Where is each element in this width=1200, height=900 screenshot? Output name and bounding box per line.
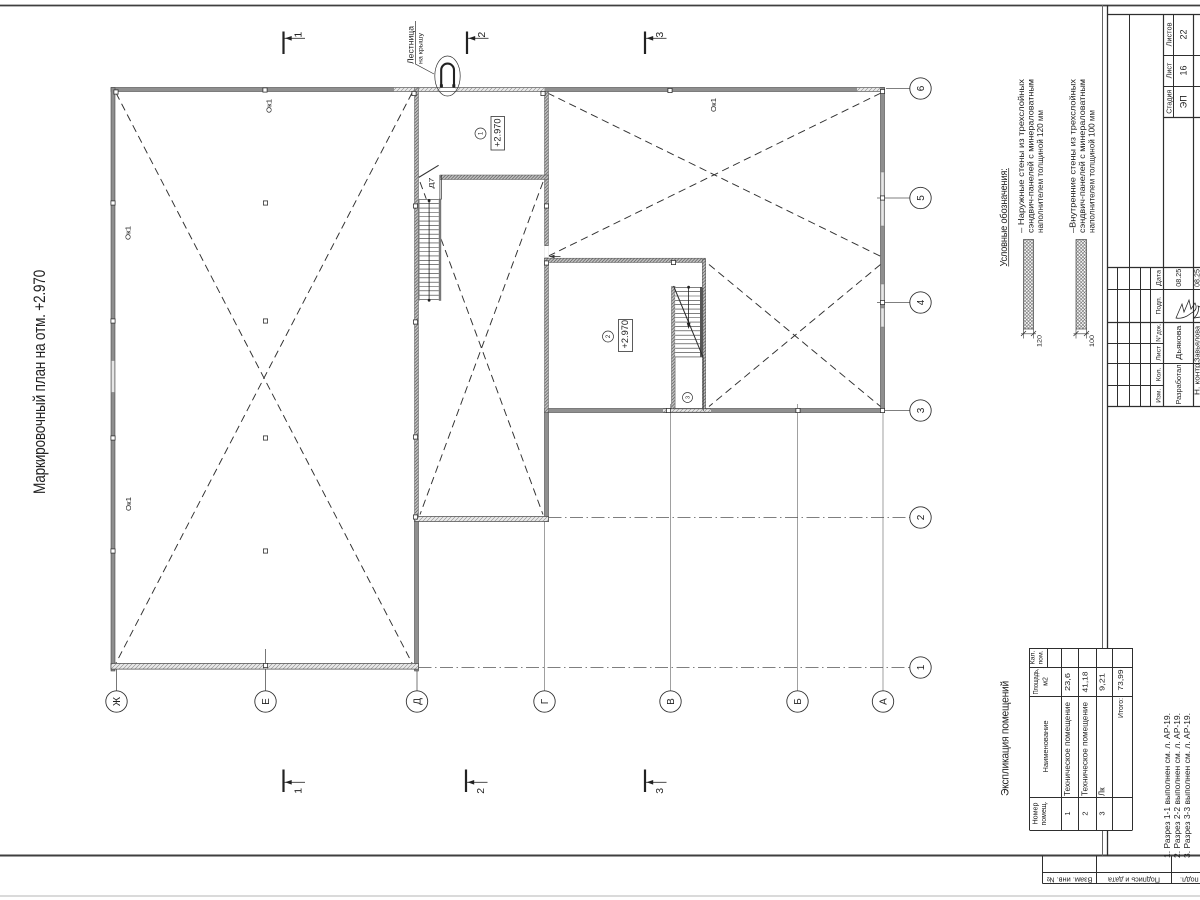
- svg-text:5: 5: [916, 195, 927, 201]
- svg-text:Завьялова: Завьялова: [1193, 326, 1200, 362]
- svg-text:– Наружные стены из трехслойны: – Наружные стены из трехслойных: [1016, 78, 1026, 233]
- svg-text:Итого:: Итого:: [1116, 698, 1125, 718]
- svg-text:3: 3: [916, 407, 927, 413]
- svg-text:08.25: 08.25: [1193, 269, 1200, 287]
- svg-text:2: 2: [475, 788, 487, 794]
- svg-text:Инв. № подл.: Инв. № подл.: [1180, 876, 1200, 883]
- svg-text:3: 3: [686, 396, 692, 399]
- svg-text:23,6: 23,6: [1063, 673, 1072, 691]
- svg-text:1. Разрез 1-1 выполнен см. л.: 1. Разрез 1-1 выполнен см. л. АР-19.: [1163, 713, 1172, 858]
- svg-text:наполнителем толщиной 100 мм: наполнителем толщиной 100 мм: [1087, 110, 1097, 233]
- svg-text:сэндвич-панелей с минераловатн: сэндвич-панелей с минераловатным: [1077, 79, 1087, 233]
- svg-text:Маркировочный план на отм. +2.: Маркировочный план на отм. +2.970: [30, 270, 49, 494]
- svg-text:пом.: пом.: [1038, 650, 1045, 664]
- svg-text:Е: Е: [261, 698, 272, 705]
- svg-text:1: 1: [292, 788, 304, 794]
- svg-text:6: 6: [916, 85, 927, 91]
- svg-text:N°док.: N°док.: [1155, 324, 1163, 342]
- svg-text:Подп.: Подп.: [1156, 296, 1163, 314]
- svg-text:3: 3: [1098, 811, 1107, 815]
- svg-text:Ок1: Ок1: [267, 99, 274, 113]
- svg-text:наполнителем толщиной 120 мм: наполнителем толщиной 120 мм: [1035, 110, 1045, 233]
- svg-text:Д7: Д7: [429, 177, 436, 189]
- svg-text:3: 3: [654, 32, 666, 38]
- svg-text:Разработал: Разработал: [1174, 365, 1183, 405]
- svg-text:Б: Б: [793, 698, 804, 705]
- svg-text:1: 1: [1063, 811, 1072, 815]
- svg-text:Ж: Ж: [112, 696, 123, 706]
- svg-text:+2.970: +2.970: [620, 320, 630, 349]
- svg-text:Стадия: Стадия: [1165, 90, 1174, 114]
- svg-text:120: 120: [1037, 335, 1044, 347]
- svg-text:ЭП: ЭП: [1179, 95, 1189, 108]
- svg-text:1: 1: [292, 32, 304, 38]
- svg-text:2. Разрез 2-2 выполнен см. л.: 2. Разрез 2-2 выполнен см. л. АР-19.: [1173, 713, 1182, 858]
- svg-text:м2: м2: [1043, 677, 1050, 686]
- svg-text:Лист: Лист: [1156, 346, 1163, 361]
- svg-text:3: 3: [654, 788, 666, 794]
- svg-text:2: 2: [476, 32, 488, 38]
- svg-text:Взам. инв. №: Взам. инв. №: [1047, 876, 1093, 883]
- svg-text:16: 16: [1179, 65, 1189, 75]
- svg-text:В: В: [666, 698, 677, 705]
- svg-text:22: 22: [1179, 29, 1189, 39]
- svg-text:Ок1: Ок1: [711, 98, 718, 112]
- svg-text:73,99: 73,99: [1116, 670, 1125, 691]
- svg-text:Изм.: Изм.: [1156, 389, 1163, 403]
- svg-text:Наименование: Наименование: [1041, 721, 1050, 773]
- svg-text:Техническое помещение: Техническое помещение: [1063, 702, 1072, 796]
- svg-text:9,21: 9,21: [1098, 673, 1107, 691]
- svg-text:Площадь,: Площадь,: [1033, 668, 1040, 694]
- svg-text:Кол.: Кол.: [1156, 367, 1163, 381]
- svg-text:Экспликация помещений: Экспликация помещений: [1000, 681, 1012, 796]
- svg-text:Дата: Дата: [1156, 270, 1163, 286]
- svg-text:Лестница: Лестница: [407, 26, 416, 64]
- svg-text:Техническое помещение: Техническое помещение: [1081, 702, 1090, 796]
- svg-text:–Внутренние стены из трехслойн: –Внутренние стены из трехслойных: [1068, 78, 1078, 233]
- svg-text:помещ.: помещ.: [1041, 801, 1048, 825]
- svg-text:Ок1: Ок1: [126, 226, 133, 240]
- svg-text:Кап.: Кап.: [1030, 650, 1037, 664]
- svg-text:+2.970: +2.970: [493, 118, 503, 147]
- svg-text:Ок1: Ок1: [126, 497, 133, 511]
- svg-text:Г: Г: [540, 698, 551, 704]
- svg-text:сэндвич-панелей с минераловатн: сэндвич-панелей с минераловатным: [1026, 79, 1036, 233]
- svg-text:Листов: Листов: [1165, 22, 1174, 46]
- svg-text:Д: Д: [412, 698, 423, 705]
- svg-text:Лк: Лк: [1098, 787, 1107, 796]
- svg-text:Лист: Лист: [1165, 62, 1174, 78]
- svg-text:Дьякова: Дьякова: [1174, 326, 1183, 360]
- svg-text:А: А: [878, 698, 889, 705]
- svg-text:Н. контр.: Н. контр.: [1193, 361, 1200, 395]
- svg-text:3. Разрез 3-3 выполнен см. л.: 3. Разрез 3-3 выполнен см. л. АР-19.: [1183, 713, 1192, 858]
- svg-text:2: 2: [916, 514, 927, 520]
- svg-text:Условные обозначения:: Условные обозначения:: [998, 169, 1010, 267]
- svg-text:4: 4: [916, 299, 927, 305]
- svg-text:на крышу: на крышу: [418, 32, 425, 64]
- svg-text:1: 1: [916, 664, 927, 670]
- svg-text:100: 100: [1089, 335, 1096, 347]
- svg-text:Номер: Номер: [1033, 802, 1040, 824]
- svg-text:41,18: 41,18: [1081, 672, 1090, 693]
- svg-text:08.25: 08.25: [1174, 269, 1183, 287]
- svg-text:2: 2: [1081, 811, 1090, 815]
- svg-text:Подпись и дата: Подпись и дата: [1108, 876, 1160, 883]
